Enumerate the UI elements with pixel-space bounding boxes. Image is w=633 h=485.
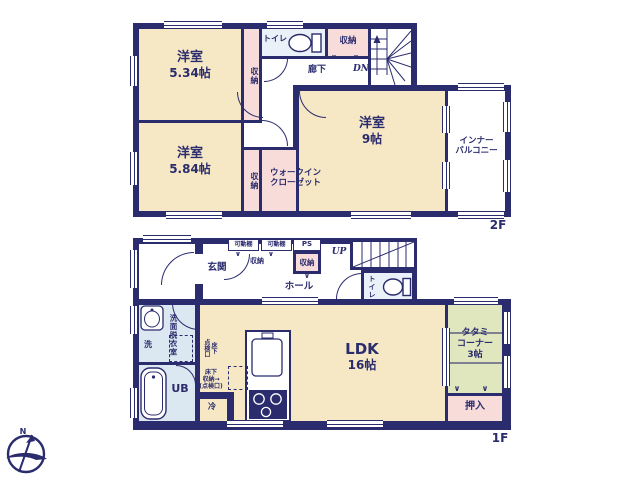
balcony-label: インナー バルコニー xyxy=(448,136,505,156)
fold-door-mark: ∨ xyxy=(452,384,462,394)
stairs-down-label: DN xyxy=(348,64,374,75)
toilet-icon xyxy=(287,31,323,55)
floor-hatch-label: 床下 点検口 xyxy=(199,333,217,363)
window xyxy=(130,152,138,185)
room-label-ldk: LDK 16帖 xyxy=(320,340,404,372)
underfloor-storage-label: 床下 収納→ (点検口) xyxy=(195,369,227,391)
staircase-1f xyxy=(350,239,417,270)
floor-2f-label: 2F xyxy=(484,218,512,232)
room-name: 洋室 xyxy=(148,50,232,66)
wic-label: ウォークイン クローゼット xyxy=(262,168,329,188)
window xyxy=(503,102,511,132)
sliding-opening xyxy=(442,328,450,386)
oshiire-label: 押入 xyxy=(447,401,503,413)
tatami-line2: コーナー xyxy=(446,339,504,350)
ps-label: PS xyxy=(294,240,320,249)
room-label-bedroom-5-84: 洋室 5.84帖 xyxy=(146,146,234,176)
staircase-2f xyxy=(368,26,414,88)
wic-line1: ウォークイン xyxy=(262,168,329,178)
porch-opening xyxy=(143,235,191,243)
room-name: 洋室 xyxy=(146,146,234,162)
fold-door-mark: ∨ xyxy=(266,250,276,258)
entrance-label: 玄関 xyxy=(199,262,235,273)
tatami-line1: タタミ xyxy=(446,328,504,339)
window xyxy=(164,21,222,29)
underfloor-storage-box xyxy=(228,366,248,390)
balcony-line1: インナー xyxy=(448,136,505,146)
stairs-down-icon xyxy=(371,29,411,85)
window xyxy=(503,160,511,192)
fridge-label: 冷 xyxy=(201,402,223,412)
window xyxy=(442,106,450,133)
hatch-col2: 点検口 xyxy=(203,333,210,363)
window xyxy=(166,211,222,219)
room-label-bedroom-5-34: 洋室 5.34帖 xyxy=(148,50,232,80)
room-size: 5.84帖 xyxy=(146,162,234,176)
hatch-col1: 床下 xyxy=(210,333,217,363)
washer-label: 洗 xyxy=(140,340,156,350)
window xyxy=(503,312,511,344)
room-size: 16帖 xyxy=(320,358,404,372)
sliding-opening xyxy=(262,297,318,305)
window xyxy=(267,21,303,29)
window xyxy=(351,211,411,219)
window xyxy=(130,306,138,334)
closet-label: 収納 xyxy=(244,159,259,203)
shelf-label: 可動棚 xyxy=(262,240,291,249)
closet-label: 収納 xyxy=(296,254,318,271)
window xyxy=(327,420,383,428)
room-size: 9帖 xyxy=(330,132,414,146)
hall-closet: 収納 xyxy=(293,251,321,274)
tatami-line3: 3帖 xyxy=(446,350,504,361)
bathtub-icon xyxy=(140,367,167,420)
pipe-space-box: PS xyxy=(293,239,321,251)
balcony-line2: バルコニー xyxy=(448,146,505,156)
wall-segment xyxy=(195,284,203,305)
room-name: LDK xyxy=(320,340,404,358)
fold-door-mark: ∨ xyxy=(233,250,243,258)
window xyxy=(130,388,138,418)
wall-segment xyxy=(195,238,203,254)
washer-space-box xyxy=(169,335,193,362)
fold-door-mark: ∨ xyxy=(351,53,361,61)
floor-1f-label: 1F xyxy=(486,431,514,445)
stairs-up-icon xyxy=(353,242,414,267)
shelf-label: 可動棚 xyxy=(229,240,258,249)
window xyxy=(503,356,511,388)
kitchen-counter-icon xyxy=(245,330,291,422)
room-name: 洋室 xyxy=(330,116,414,132)
window xyxy=(130,56,138,86)
fold-door-mark: ∨ xyxy=(302,272,312,280)
closet-label: 収納 xyxy=(327,36,369,46)
floorplan-canvas: 洋室 5.34帖 洋室 5.84帖 洋室 9帖 収納 収納 トイレ 収納 廊下 … xyxy=(0,0,633,485)
washbasin-icon xyxy=(140,305,164,331)
wic-line2: クローゼット xyxy=(262,178,329,188)
tatami-label: タタミ コーナー 3帖 xyxy=(446,328,504,360)
toilet-label: トイレ xyxy=(364,274,376,300)
hall-label: ホール xyxy=(278,281,320,292)
toilet-icon xyxy=(382,276,412,298)
hallway-label: 廊下 xyxy=(298,65,336,76)
closet-label: 収納 xyxy=(244,54,259,98)
porch-opening xyxy=(130,250,138,288)
window xyxy=(227,420,283,428)
toilet-label: トイレ xyxy=(260,34,290,44)
stairs-up-label: UP xyxy=(329,247,349,258)
ufs-line3: (点検口) xyxy=(195,383,227,390)
compass-north-label: N xyxy=(16,427,30,437)
room-size: 5.34帖 xyxy=(148,66,232,80)
fold-door-mark: ∨ xyxy=(480,384,490,394)
fold-door-mark: ∨ xyxy=(329,53,339,61)
window xyxy=(454,297,498,305)
tatami-mat-line xyxy=(448,362,502,364)
window xyxy=(458,83,504,91)
window xyxy=(442,162,450,189)
room-label-bedroom-9: 洋室 9帖 xyxy=(330,116,414,146)
